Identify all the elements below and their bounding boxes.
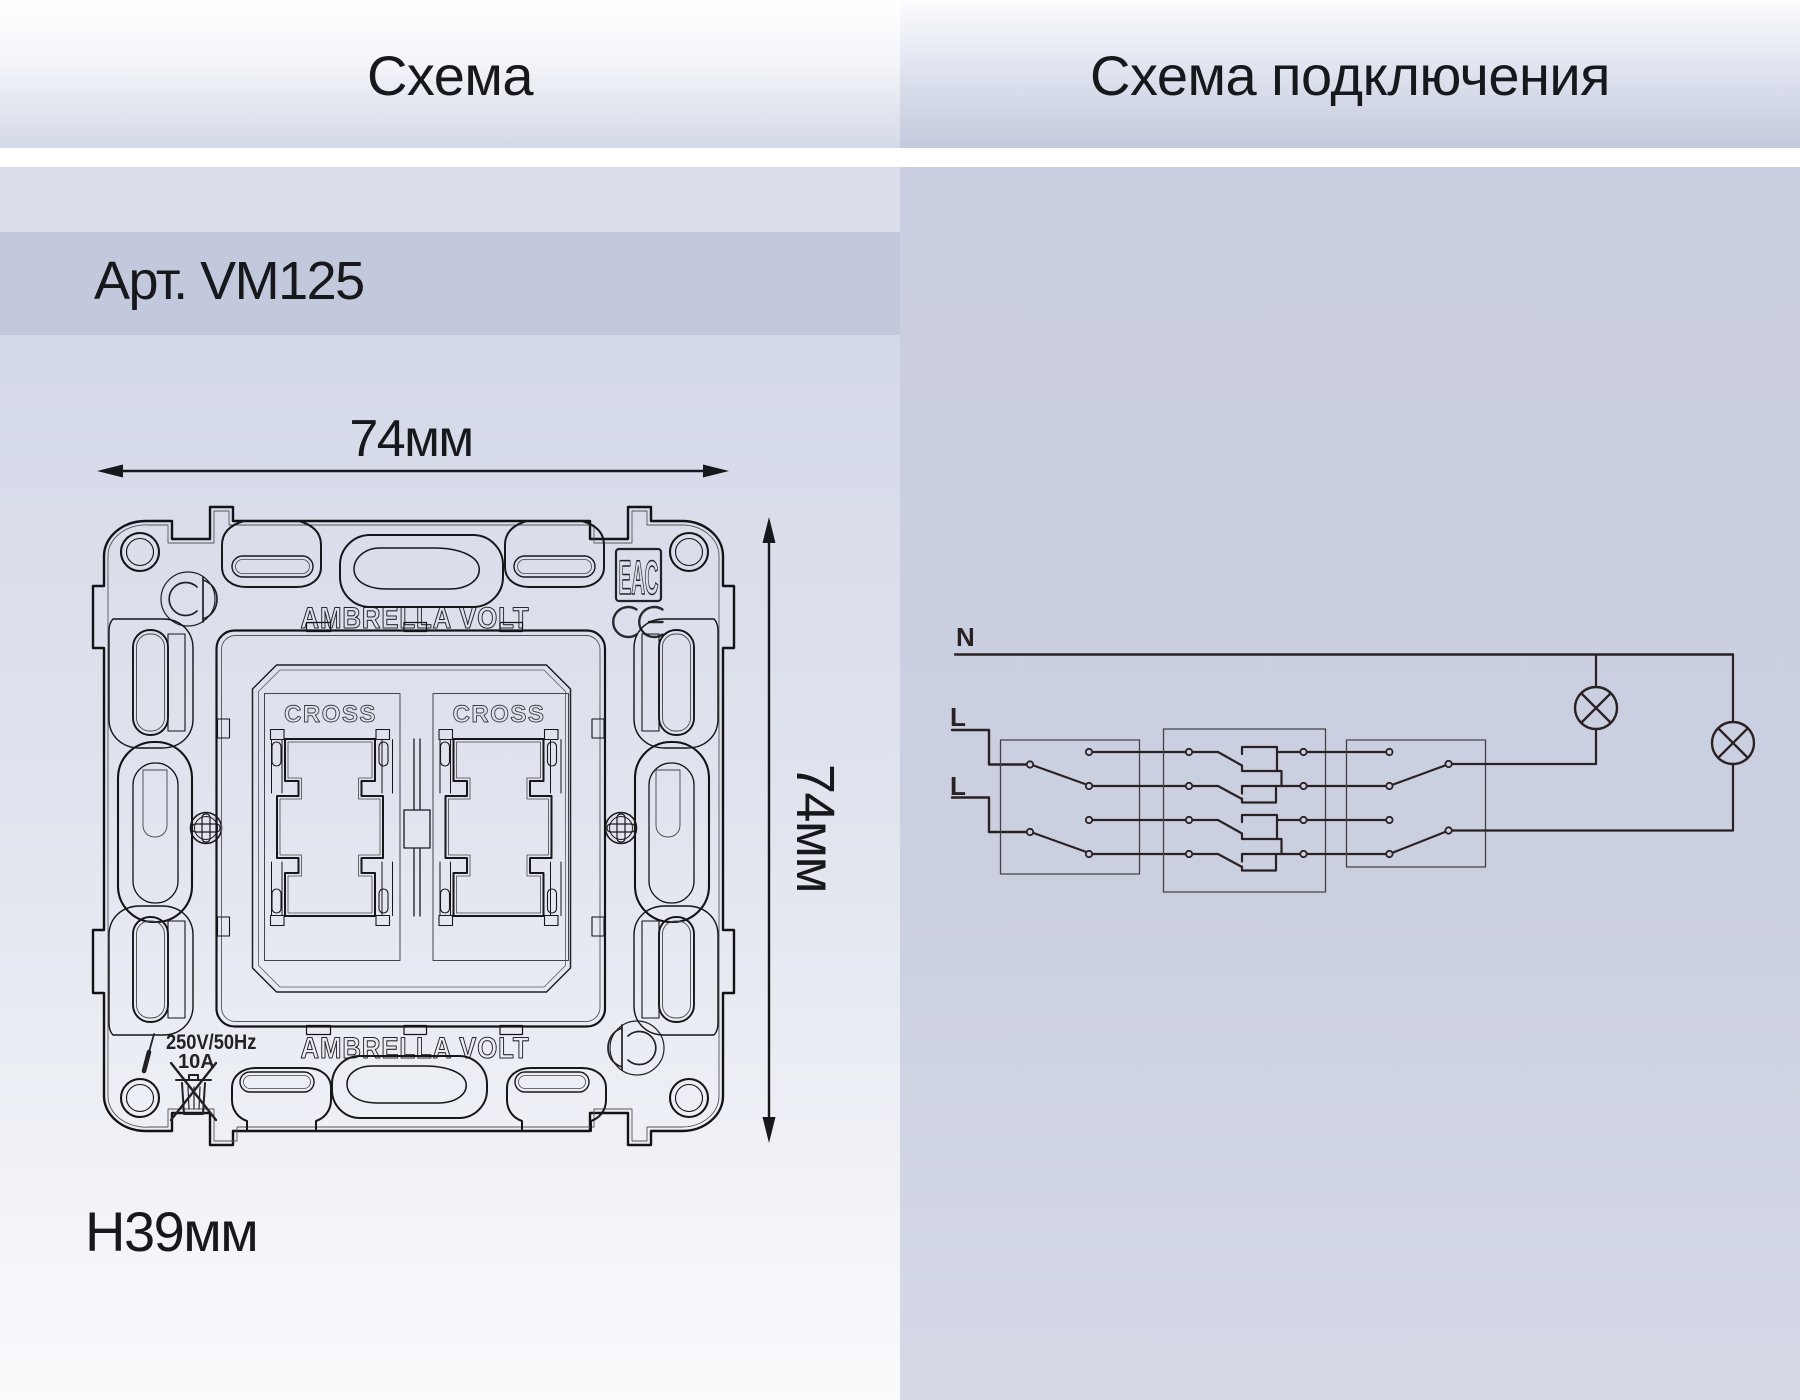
svg-text:CROSS: CROSS (284, 701, 377, 728)
svg-text:ЕАС: ЕАС (618, 551, 658, 605)
svg-text:H39мм: H39мм (85, 1200, 257, 1263)
svg-text:74мм: 74мм (785, 764, 845, 892)
svg-text:AMBRELLA VOLT: AMBRELLA VOLT (301, 1031, 530, 1064)
svg-text:74мм: 74мм (349, 410, 472, 468)
svg-text:L: L (950, 702, 966, 732)
svg-text:N: N (956, 622, 975, 652)
svg-text:CROSS: CROSS (453, 701, 546, 728)
